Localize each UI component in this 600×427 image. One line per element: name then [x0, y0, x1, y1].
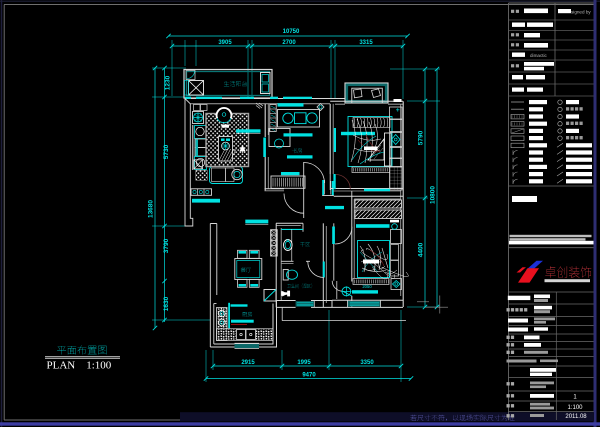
svg-text:1:100: 1:100	[567, 405, 583, 411]
svg-text:10750: 10750	[283, 29, 300, 35]
svg-text:3905: 3905	[218, 40, 232, 46]
svg-text:1230: 1230	[165, 75, 172, 90]
svg-text:2700: 2700	[282, 40, 296, 46]
svg-text:1630: 1630	[163, 296, 170, 311]
svg-text:2011.08: 2011.08	[565, 414, 587, 420]
svg-text:signed by: signed by	[571, 10, 591, 15]
svg-text:PLAN 1:100: PLAN 1:100	[47, 360, 112, 372]
svg-text:10800: 10800	[430, 186, 437, 204]
svg-text:3315: 3315	[359, 40, 373, 46]
svg-text:3790: 3790	[163, 238, 170, 253]
svg-text:1995: 1995	[297, 360, 311, 366]
svg-text:3350: 3350	[360, 360, 374, 366]
svg-text:4400: 4400	[418, 242, 425, 257]
svg-text:5790: 5790	[418, 130, 425, 145]
svg-text:9470: 9470	[302, 373, 316, 379]
svg-text:dimactic: dimactic	[530, 53, 548, 58]
svg-text:1: 1	[573, 395, 577, 401]
svg-text:13680: 13680	[148, 200, 155, 218]
svg-text:2915: 2915	[241, 360, 255, 366]
svg-text:5730: 5730	[163, 144, 170, 159]
svg-text:2050: 2050	[362, 284, 372, 289]
